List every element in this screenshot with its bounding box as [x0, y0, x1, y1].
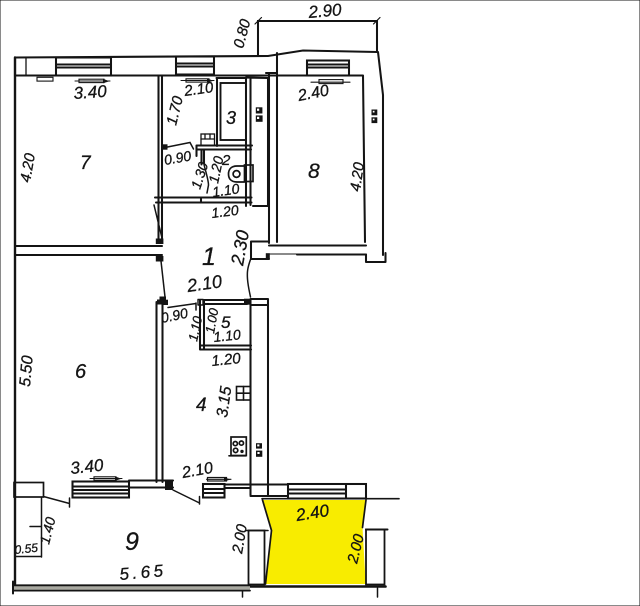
- svg-text:3.40: 3.40: [73, 82, 108, 103]
- svg-text:0.55: 0.55: [14, 541, 39, 557]
- svg-text:5.65: 5.65: [119, 561, 168, 584]
- svg-text:1.10: 1.10: [213, 326, 242, 345]
- svg-text:6: 6: [75, 361, 87, 383]
- svg-text:3.40: 3.40: [69, 456, 104, 478]
- svg-text:2.10: 2.10: [182, 79, 215, 100]
- svg-text:4.20: 4.20: [17, 151, 39, 183]
- svg-text:3.15: 3.15: [214, 385, 235, 418]
- svg-text:5.50: 5.50: [17, 355, 37, 388]
- svg-text:1.70: 1.70: [163, 94, 187, 127]
- svg-text:1.20: 1.20: [211, 350, 242, 370]
- svg-text:4: 4: [196, 395, 207, 416]
- svg-text:2.10: 2.10: [185, 271, 223, 296]
- svg-text:3: 3: [226, 108, 236, 128]
- svg-text:9: 9: [125, 528, 139, 556]
- svg-text:0.90: 0.90: [163, 147, 193, 168]
- svg-text:0.90: 0.90: [159, 305, 189, 326]
- svg-text:1: 1: [202, 243, 216, 271]
- svg-text:1.40: 1.40: [36, 515, 58, 546]
- svg-text:0.80: 0.80: [230, 17, 254, 50]
- svg-text:2.90: 2.90: [307, 0, 343, 22]
- svg-text:8: 8: [308, 160, 320, 183]
- svg-text:1.20: 1.20: [210, 202, 239, 221]
- svg-text:1.20: 1.20: [205, 154, 226, 184]
- svg-text:2.40: 2.40: [296, 82, 331, 105]
- svg-text:7: 7: [80, 153, 92, 174]
